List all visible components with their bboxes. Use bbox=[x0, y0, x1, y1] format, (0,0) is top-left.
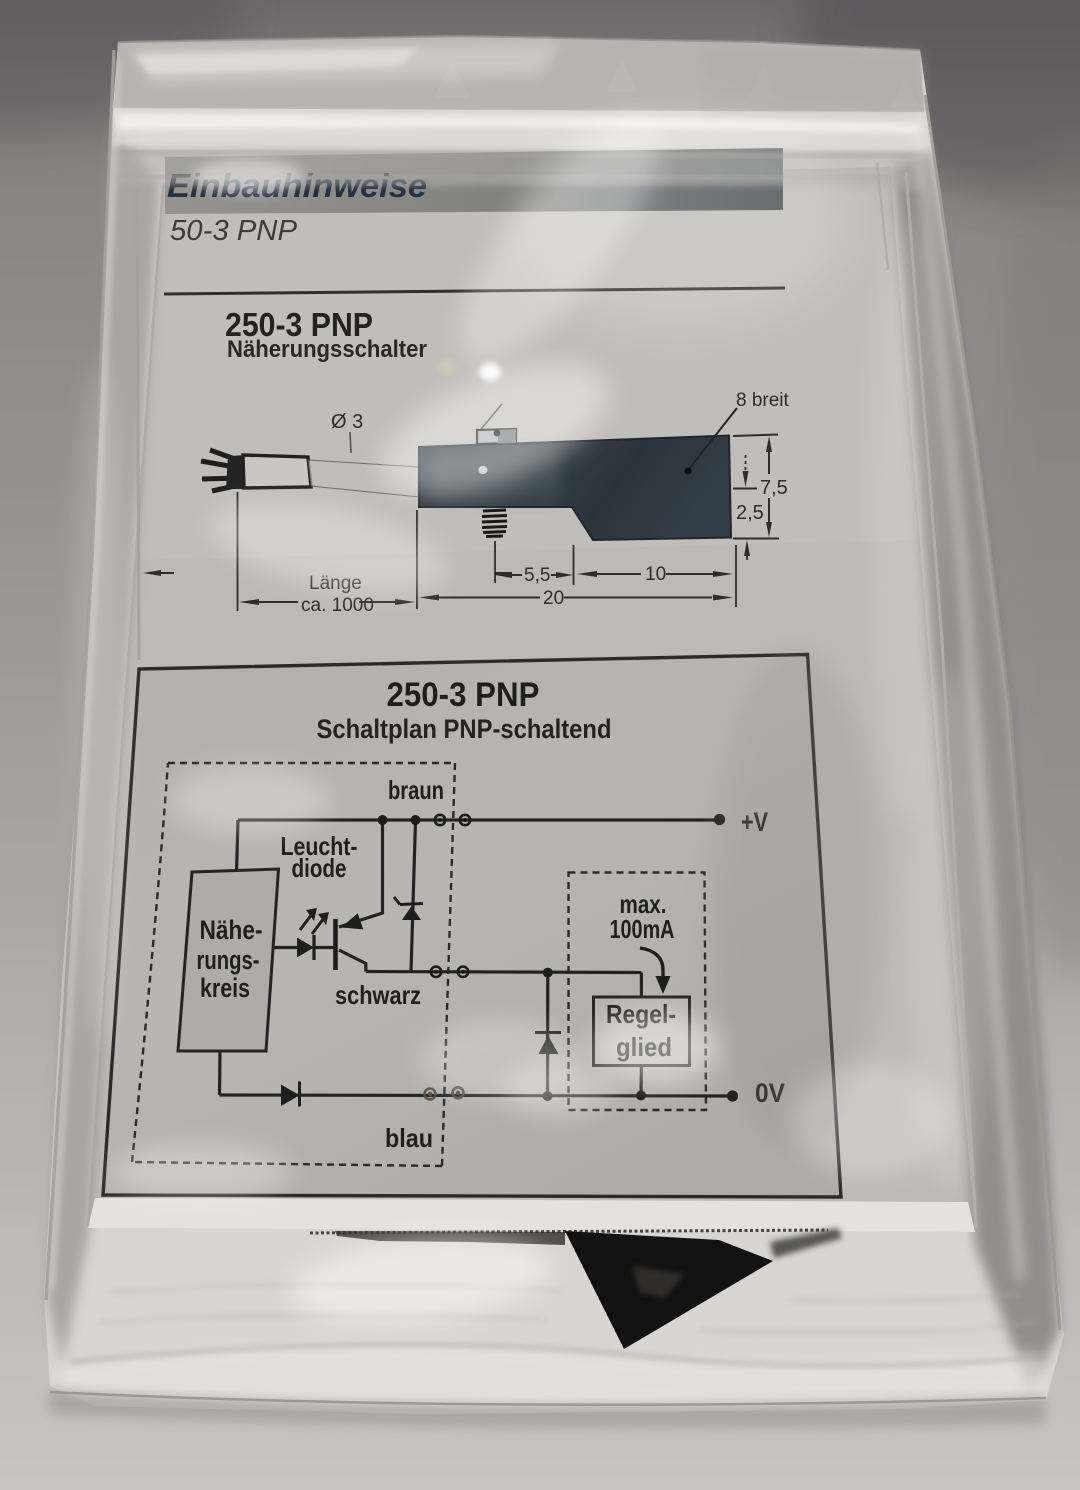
svg-text:10: 10 bbox=[645, 564, 666, 585]
svg-text:Näherungsschalter: Näherungsschalter bbox=[227, 336, 427, 363]
svg-text:20: 20 bbox=[543, 588, 564, 609]
svg-text:7,5: 7,5 bbox=[760, 477, 788, 499]
svg-text:Schaltplan PNP-schaltend: Schaltplan PNP-schaltend bbox=[317, 714, 612, 744]
svg-text:braun: braun bbox=[388, 775, 444, 805]
svg-text:5,5: 5,5 bbox=[524, 565, 550, 586]
svg-text:diode: diode bbox=[292, 853, 347, 883]
svg-text:blau: blau bbox=[385, 1123, 433, 1153]
svg-text:Nähe-: Nähe- bbox=[200, 915, 263, 945]
svg-text:2,5: 2,5 bbox=[736, 502, 764, 524]
svg-text:kreis: kreis bbox=[200, 973, 250, 1003]
svg-text:50-3 PNP: 50-3 PNP bbox=[170, 215, 298, 247]
svg-text:schwarz: schwarz bbox=[335, 980, 421, 1010]
svg-text:Ø 3: Ø 3 bbox=[331, 411, 363, 433]
svg-text:250-3 PNP: 250-3 PNP bbox=[387, 676, 540, 714]
svg-text:ca. 1000: ca. 1000 bbox=[301, 595, 374, 616]
svg-text:rungs-: rungs- bbox=[197, 945, 260, 975]
svg-text:8 breit: 8 breit bbox=[736, 390, 790, 411]
svg-text:100mA: 100mA bbox=[610, 914, 675, 944]
